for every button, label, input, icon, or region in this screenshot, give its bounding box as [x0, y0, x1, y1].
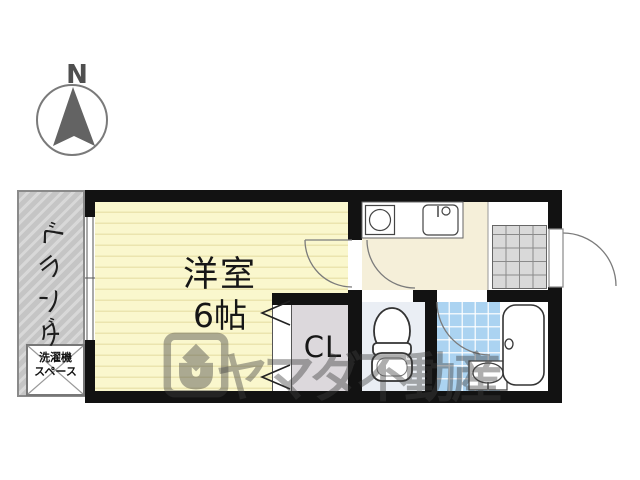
- laundry-label-line2: スペース: [27, 365, 84, 379]
- kitchen-sink-icon: [423, 205, 458, 235]
- watermark-text: ヤマダ不動産: [216, 336, 498, 412]
- window-glazing-lines: [85, 217, 95, 340]
- stove-burner-icon: [366, 206, 395, 235]
- laundry-label-line1: 洗濯機: [27, 351, 84, 365]
- room-door-swing: [305, 240, 352, 287]
- veranda-label: ベ ラ ン ダ: [36, 218, 66, 350]
- laundry-space-label: 洗濯機 スペース: [27, 351, 84, 379]
- bathtub-icon: [503, 305, 544, 385]
- entrance-door-swing: [549, 229, 616, 287]
- toilet-door-swing: [367, 240, 415, 288]
- north-arrow-icon: [37, 85, 107, 155]
- main-room-size: 6帖: [150, 289, 290, 337]
- floor-plan-page: N: [0, 0, 640, 480]
- kitchen-counter: [362, 202, 463, 238]
